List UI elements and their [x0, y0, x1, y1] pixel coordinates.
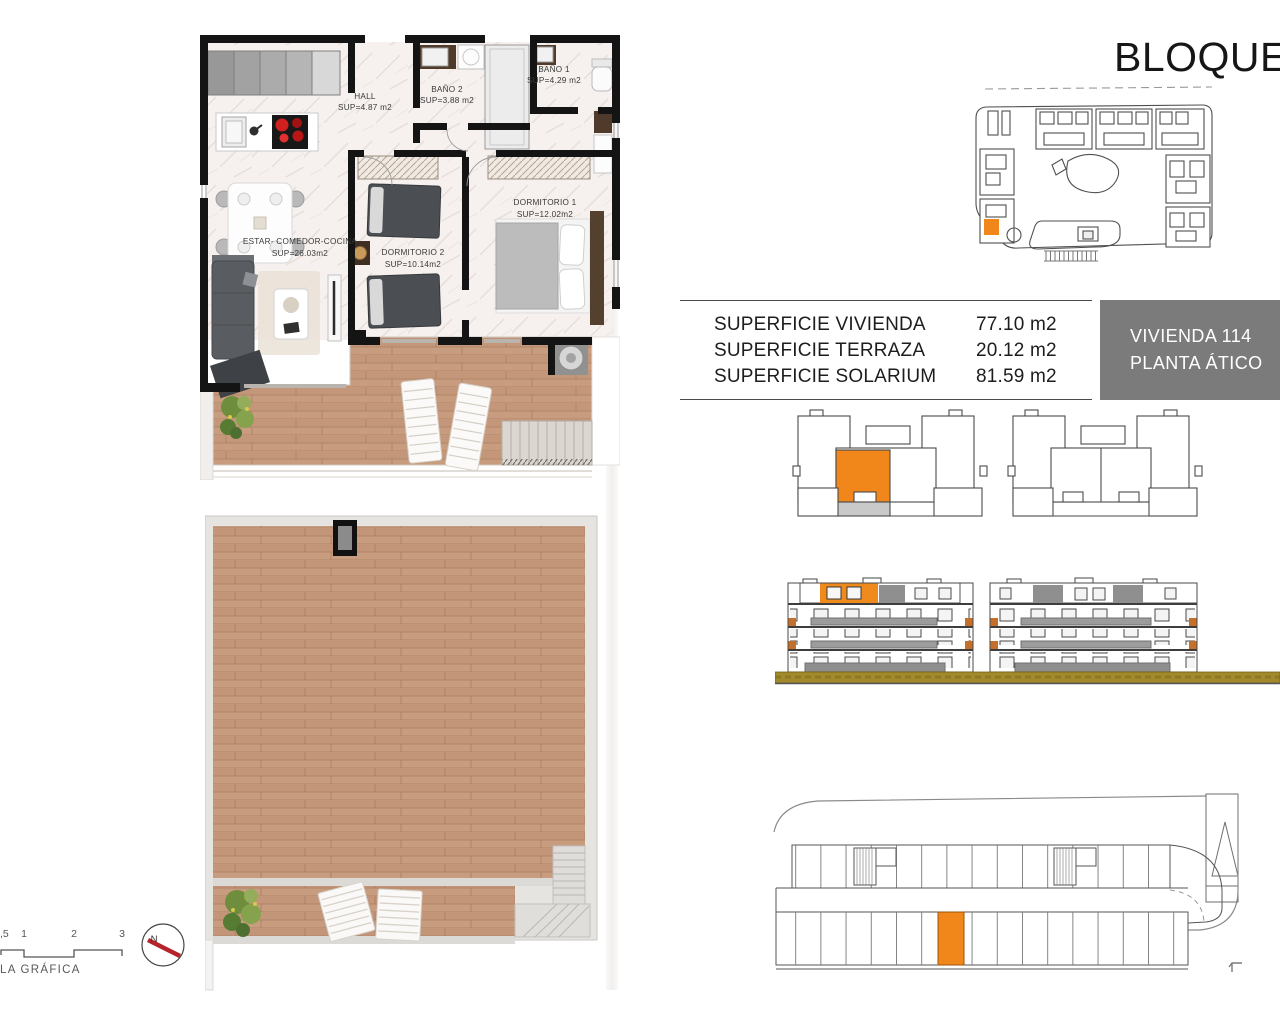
area-label: SUPERFICIE VIVIENDA — [714, 312, 976, 338]
elevation-right-building — [990, 578, 1197, 672]
access-road — [774, 796, 1206, 832]
cooktop-icon — [272, 115, 308, 149]
area-value: 77.10 m2 — [976, 312, 1057, 338]
scale-tick-05: ,5 — [0, 928, 9, 940]
scale-bar-label: LA GRÁFICA — [0, 963, 81, 976]
left-edge-strip — [205, 940, 213, 990]
storage-bottom-row — [776, 912, 1188, 969]
site-boundary-dashed — [985, 87, 1212, 89]
room-area-bath2: SUP=3.88 m2 — [420, 96, 474, 105]
wardrobe-dorm2 — [358, 156, 438, 179]
kitchen-island — [216, 113, 318, 151]
deck-divider — [213, 878, 585, 886]
basement-unit-highlight — [938, 912, 964, 965]
bathroom2-fixtures — [416, 45, 484, 69]
room-area-hall: SUP=4.87 m2 — [338, 103, 392, 112]
area-row-vivienda: SUPERFICIE VIVIENDA 77.10 m2 — [714, 312, 1092, 338]
shower-stall — [485, 45, 529, 149]
area-value: 81.59 m2 — [976, 364, 1057, 390]
solarium-plan — [205, 512, 620, 992]
unit-floor: PLANTA ÁTICO — [1130, 350, 1280, 377]
site-key-plan — [950, 85, 1280, 270]
terrace-stairs — [502, 421, 592, 465]
room-label-dorm1: DORMITORIO 1 — [514, 198, 577, 207]
basement-plan — [770, 790, 1280, 990]
room-label-bath2: BAÑO 2 — [431, 84, 463, 94]
area-row-solarium: SUPERFICIE SOLARIUM 81.59 m2 — [714, 364, 1092, 390]
area-label: SUPERFICIE TERRAZA — [714, 338, 976, 364]
scale-tick-1: 1 — [21, 928, 27, 940]
unit-card: VIVIENDA 114 PLANTA ÁTICO — [1100, 300, 1280, 400]
compass-north-label: N — [151, 934, 158, 945]
outdoor-shower — [554, 341, 588, 375]
site-hatch-strip — [1044, 251, 1098, 261]
room-label-dorm2: DORMITORIO 2 — [382, 248, 445, 257]
solarium-deck — [213, 526, 585, 878]
coffee-table — [274, 289, 308, 339]
areas-table: SUPERFICIE VIVIENDA 77.10 m2 SUPERFICIE … — [680, 300, 1092, 400]
site-unit-highlight — [984, 219, 999, 235]
wardrobe-dorm1 — [488, 156, 590, 179]
sheet-title: BLOQUE — [1114, 34, 1280, 90]
room-area-bath1: SUP=4.29 m2 — [527, 76, 581, 85]
scale-bar-line — [1, 950, 122, 957]
site-buildings-top — [1036, 109, 1204, 149]
room-area-living: SUP=26.03m2 — [272, 249, 328, 258]
key-plan-left — [790, 408, 990, 533]
kitchen-cabinets — [208, 51, 340, 95]
corner-mark-icon — [1228, 958, 1248, 978]
scale-tick-3: 3 — [119, 928, 125, 940]
area-value: 20.12 m2 — [976, 338, 1057, 364]
key-unit-entry — [836, 502, 890, 516]
elevation-left-building — [788, 578, 973, 672]
room-area-dorm2: SUP=10.14m2 — [385, 260, 441, 269]
room-area-dorm1: SUP=12.02m2 — [517, 210, 573, 219]
apartment-floor-plan: HALL SUP=4.87 m2 BAÑO 2 SUP=3.88 m2 BAÑO… — [200, 35, 620, 480]
plan-sheet: HALL SUP=4.87 m2 BAÑO 2 SUP=3.88 m2 BAÑO… — [0, 0, 1280, 1024]
north-compass: N — [136, 920, 194, 976]
ground-strip — [775, 672, 1280, 684]
room-label-bath1: BAÑO 1 — [538, 64, 570, 74]
scale-tick-2: 2 — [71, 928, 77, 940]
chimney — [333, 520, 357, 556]
unit-name: VIVIENDA 114 — [1130, 323, 1280, 350]
area-row-terraza: SUPERFICIE TERRAZA 20.12 m2 — [714, 338, 1092, 364]
room-label-hall: HALL — [354, 92, 376, 101]
area-label: SUPERFICIE SOLARIUM — [714, 364, 976, 390]
building-elevations — [775, 575, 1280, 690]
site-buildings-right — [1166, 155, 1210, 247]
tv-unit — [328, 275, 341, 341]
key-plan-right — [1005, 408, 1205, 533]
scale-bar: ,5 1 2 3 LA GRÁFICA — [0, 925, 140, 980]
storage-top-row — [792, 845, 1222, 923]
lower-paving — [213, 936, 515, 944]
room-label-living: ESTAR- COMEDOR-COCINA — [243, 237, 358, 246]
